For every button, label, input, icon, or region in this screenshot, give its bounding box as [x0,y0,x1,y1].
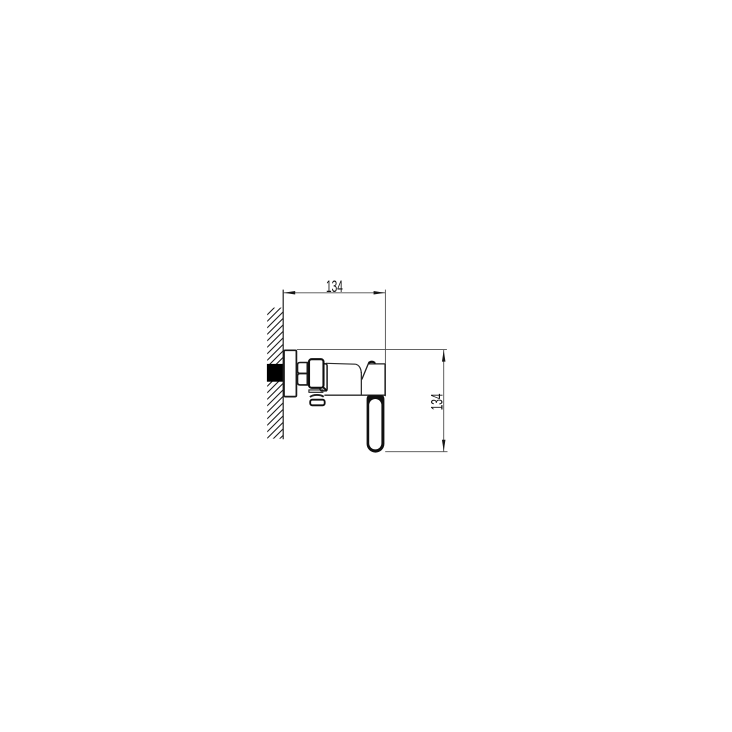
svg-text:134: 134 [427,393,446,410]
svg-text:134: 134 [326,276,343,295]
